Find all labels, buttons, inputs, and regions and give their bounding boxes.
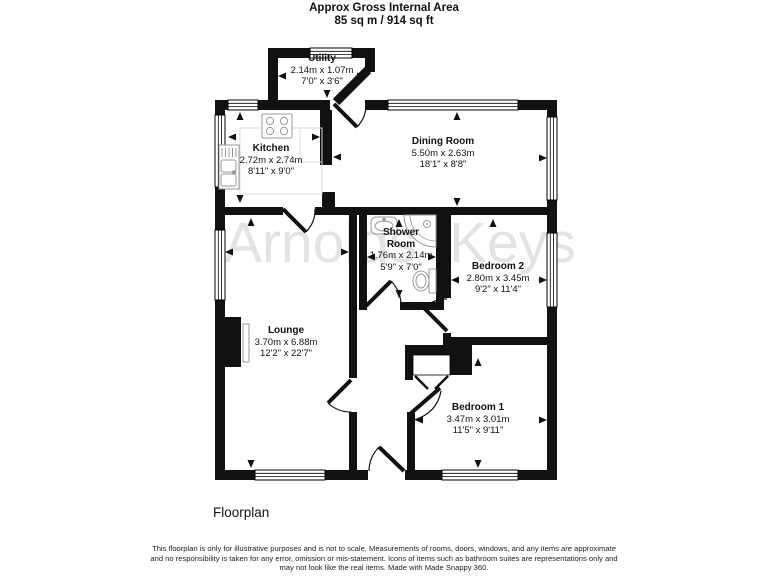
kitchen-sink-icon (219, 145, 239, 189)
room-label-dining: Dining Room 5.50m x 2.63m 18'1" x 8'8" (412, 136, 475, 171)
room-name: Bedroom 2 (467, 261, 530, 273)
disclaimer-line: This floorplan is only for illustrative … (0, 544, 768, 554)
hob-icon (262, 114, 292, 138)
window (547, 233, 557, 307)
lounge-door (328, 380, 351, 412)
floorplan-caption: Floorplan (213, 505, 269, 520)
room-name: Utility (291, 53, 354, 65)
room-dims-metric: 2.80m x 3.45m (467, 273, 530, 285)
wardrobe-doors (415, 376, 448, 389)
window (228, 100, 258, 110)
room-name: Bedroom 1 (447, 402, 510, 414)
window (255, 470, 325, 480)
wardrobe (413, 355, 450, 375)
room-label-utility: Utility 2.14m x 1.07m 7'0" x 3'6" (291, 53, 354, 88)
disclaimer-line: and no responsibility is taken for any e… (0, 554, 768, 564)
room-dims-imperial: 8'11" x 9'0" (240, 166, 303, 178)
room-dims-metric: 2.72m x 2.74m (240, 155, 303, 167)
room-label-kitchen: Kitchen 2.72m x 2.74m 8'11" x 9'0" (240, 143, 303, 178)
room-dims-imperial: 18'1" x 8'8" (412, 159, 475, 171)
room-label-bedroom1: Bedroom 1 3.47m x 3.01m 11'5" x 9'11" (447, 402, 510, 437)
room-label-bedroom2: Bedroom 2 2.80m x 3.45m 9'2" x 11'4" (467, 261, 530, 296)
room-dims-imperial: 7'0" x 3'6" (291, 76, 354, 88)
room-dims-metric: 2.14m x 1.07m (291, 65, 354, 77)
floorplan-page: Approx Gross Internal Area 85 sq m / 914… (0, 0, 768, 576)
room-dims-metric: 3.70m x 6.88m (255, 337, 318, 349)
fireplace (215, 317, 249, 367)
room-dims-metric: 3.47m x 3.01m (447, 414, 510, 426)
front-door (369, 447, 404, 471)
disclaimer-line: may not look like the real items. Made w… (0, 563, 768, 573)
window (388, 100, 518, 110)
room-dims-metric: 5.50m x 2.63m (412, 148, 475, 160)
floorplan-drawing (0, 0, 768, 576)
room-dims-imperial: 11'5" x 9'11" (447, 425, 510, 437)
utility-door (334, 104, 366, 127)
room-name: Kitchen (240, 143, 303, 155)
room-name: Lounge (255, 325, 318, 337)
room-label-lounge: Lounge 3.70m x 6.88m 12'2" x 22'7" (255, 325, 318, 360)
window (442, 470, 518, 480)
room-dims-imperial: 5'9" x 7'0" (370, 262, 433, 274)
window (547, 117, 557, 200)
room-dims-imperial: 9'2" x 11'4" (467, 284, 530, 296)
room-dims-metric: 1.76m x 2.14m (370, 250, 433, 262)
shower-room-door (366, 281, 401, 306)
room-name: Dining Room (412, 136, 475, 148)
room-dims-imperial: 12'2" x 22'7" (255, 348, 318, 360)
room-label-shower: Shower Room 1.76m x 2.14m 5'9" x 7'0" (370, 227, 433, 273)
disclaimer: This floorplan is only for illustrative … (0, 544, 768, 573)
kitchen-door (283, 209, 315, 232)
room-name: Shower Room (375, 227, 427, 250)
window (215, 230, 225, 300)
